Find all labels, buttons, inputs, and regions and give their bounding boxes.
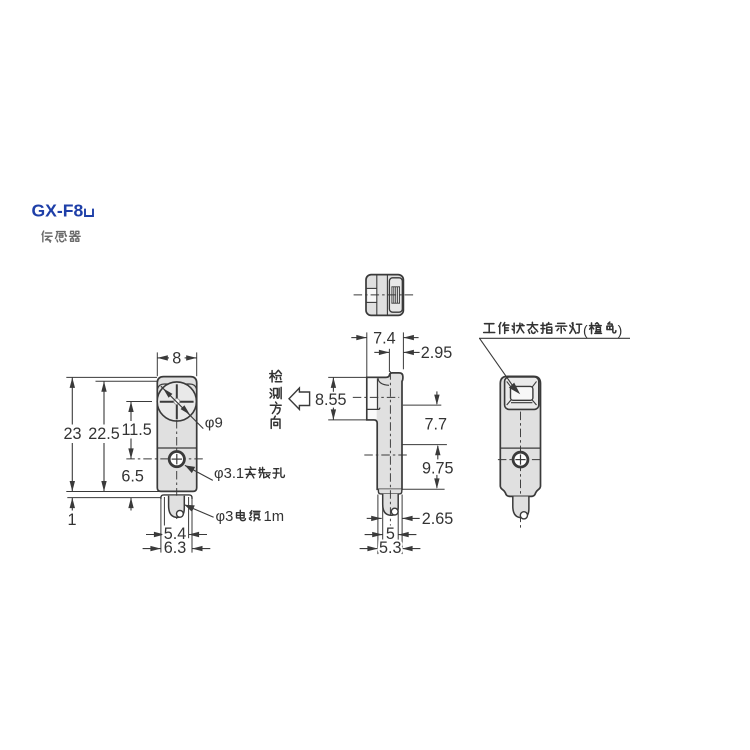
svg-text:φ9: φ9 [205,415,223,432]
svg-text:11.5: 11.5 [121,421,151,439]
svg-text:φ3: φ3 [216,509,234,525]
svg-text:8.55: 8.55 [315,391,347,409]
svg-text:1m: 1m [264,509,285,525]
svg-text:8: 8 [172,349,181,367]
svg-text:23: 23 [63,425,81,443]
svg-text:9.75: 9.75 [422,460,454,478]
svg-text:(: ( [583,322,588,338]
svg-text:6.3: 6.3 [164,539,187,557]
svg-text:GX-F8: GX-F8 [32,200,84,220]
svg-text:5.3: 5.3 [379,539,402,557]
svg-text:7.4: 7.4 [373,329,396,347]
svg-text:1: 1 [67,511,76,529]
svg-text:2.95: 2.95 [421,344,453,362]
svg-text:): ) [618,322,623,338]
svg-text:2.65: 2.65 [422,510,454,528]
svg-text:φ3.1: φ3.1 [214,466,244,482]
svg-text:22.5: 22.5 [88,425,120,443]
svg-text:7.7: 7.7 [424,416,447,434]
svg-text:6.5: 6.5 [121,468,144,486]
